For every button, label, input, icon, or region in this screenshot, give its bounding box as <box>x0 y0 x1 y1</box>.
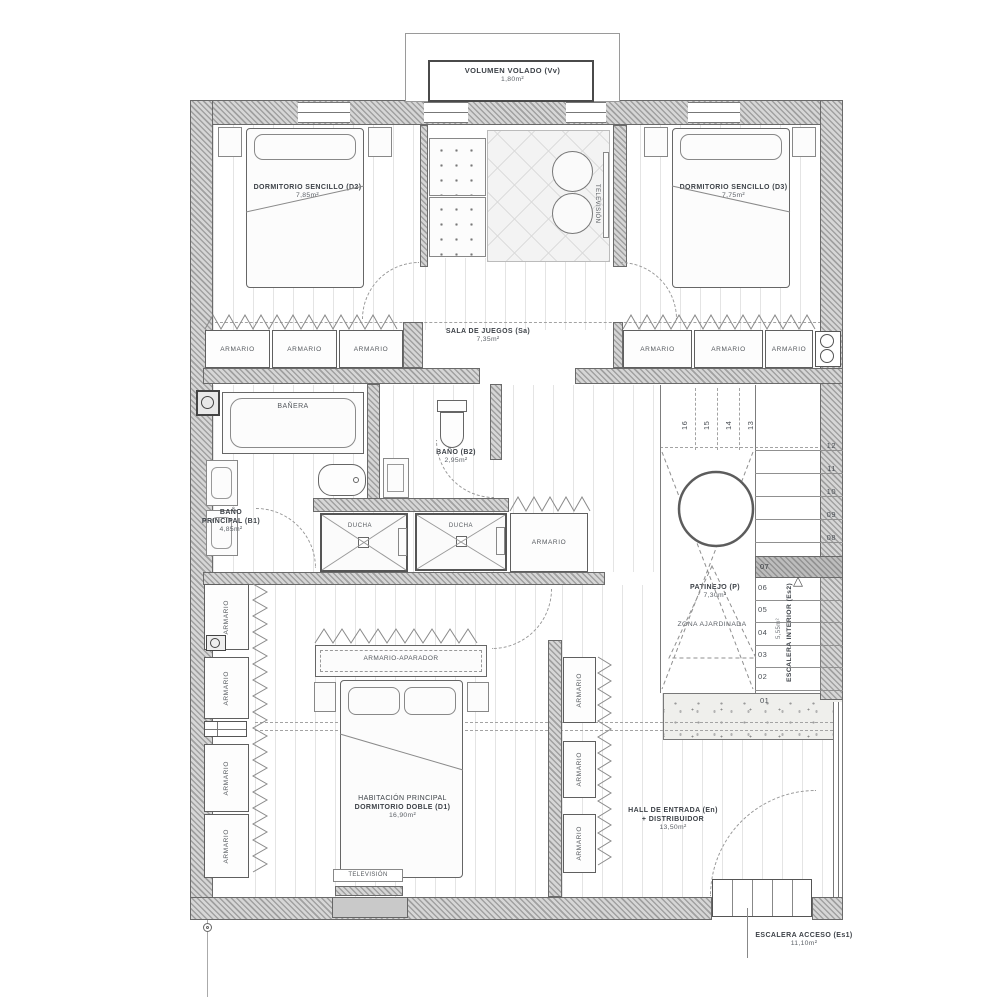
d1-name-1: HABITACIÓN PRINCIPAL <box>358 795 447 802</box>
patinejo-name: PATINEJO (P) <box>690 584 740 591</box>
armario-mid-3: ARMARIO <box>563 814 596 873</box>
d2-area: 7,85m² <box>250 192 365 201</box>
armario-label: ARMARIO <box>576 752 583 787</box>
wall-interior-right <box>575 368 843 384</box>
step-12: 12 <box>810 441 836 450</box>
d3-name: DORMITORIO SENCILLO (D3) <box>680 184 788 191</box>
step-line <box>755 690 843 691</box>
armario-label: ARMARIO <box>576 826 583 861</box>
armario-mid-2: ARMARIO <box>563 741 596 798</box>
hall-label: HALL DE ENTRADA (En) + DISTRIBUIDOR 13,5… <box>608 806 738 833</box>
armario-label: ARMARIO <box>220 346 255 353</box>
zona-ajardinada-label: ZONA AJARDINADA <box>652 621 772 630</box>
volumen-volado-name: VOLUMEN VOLADO (Vv) <box>465 66 561 75</box>
step-10: 10 <box>810 487 836 496</box>
armario-label: ARMARIO <box>354 346 389 353</box>
step-line <box>755 645 843 646</box>
wall-right <box>820 100 843 700</box>
shower-1-drain <box>358 537 369 548</box>
floor-sala <box>425 258 615 330</box>
b1-name-2: PRINCIPAL (B1) <box>202 518 260 525</box>
tv-recess-block <box>332 897 408 918</box>
sala-label: SALA DE JUEGOS (Sa) 7,35m² <box>428 327 548 345</box>
b1-name-1: BAÑO <box>220 509 242 516</box>
stair-up-arrow-icon: △ <box>793 574 803 587</box>
step-09: 09 <box>810 510 836 519</box>
tv-console <box>335 886 403 896</box>
entry-stair <box>712 879 812 917</box>
upper-flight-div-3 <box>739 388 740 450</box>
pillow-d2 <box>254 134 356 160</box>
sala-sofa-2 <box>429 197 486 257</box>
window-top-4 <box>688 102 740 123</box>
shower-2-drain <box>456 536 467 547</box>
step-line <box>755 450 843 451</box>
d1-area: 16,90m² <box>330 812 475 821</box>
window-top-1 <box>298 102 350 123</box>
armario-corridor: ARMARIO <box>510 513 588 572</box>
nightstand-d2-right <box>368 127 392 157</box>
step-line <box>755 473 843 474</box>
d1-label: HABITACIÓN PRINCIPAL DORMITORIO DOBLE (D… <box>330 794 475 821</box>
patinejo-label: PATINEJO (P) 7,30m² <box>665 583 765 601</box>
armario-label: ARMARIO <box>223 829 230 864</box>
step-line <box>755 519 843 520</box>
step-line <box>755 667 843 668</box>
es1-area: 11,10m² <box>752 940 856 949</box>
armario-top-l1: ARMARIO <box>205 330 270 368</box>
volumen-volado-label: VOLUMEN VOLADO (Vv) 1,80m² <box>408 66 617 85</box>
nightstand-d3-left <box>644 127 668 157</box>
shower-1-door <box>398 528 407 556</box>
sala-pouf-2 <box>552 193 593 234</box>
d2-label: DORMITORIO SENCILLO (D2) 7,85m² <box>250 183 365 201</box>
sala-pouf-1 <box>552 151 593 192</box>
step-16: 16 <box>680 392 689 430</box>
armario-label: ARMARIO <box>576 673 583 708</box>
wall-top <box>190 100 843 125</box>
window-hall-right <box>833 702 843 897</box>
sidetable-d1-left <box>314 682 336 712</box>
hall-area: 13,50m² <box>608 824 738 833</box>
window-top-2 <box>424 102 468 123</box>
overhead-dash-armarios <box>205 322 841 323</box>
wall-b1-b2 <box>367 384 380 500</box>
sala-tv-label: TELEVISIÓN <box>592 168 600 240</box>
armario-label: ARMARIO <box>532 539 567 546</box>
armario-label: ARMARIO <box>223 671 230 706</box>
es1-label: ESCALERA ACCESO (Es1) 11,10m² <box>752 931 856 949</box>
wall-bottom-right <box>812 897 843 920</box>
step-15: 15 <box>702 392 711 430</box>
armario-label: ARMARIO <box>711 346 746 353</box>
boiler-icon <box>196 390 220 416</box>
armario-top-r1: ARMARIO <box>623 330 692 368</box>
appliance-icon <box>206 635 226 651</box>
stair-landing-terrazzo <box>663 693 843 740</box>
d1-name-2: DORMITORIO DOBLE (D1) <box>355 804 451 811</box>
sala-area: 7,35m² <box>428 336 548 345</box>
d3-label: DORMITORIO SENCILLO (D3) 7,75m² <box>676 183 791 201</box>
toilet-b1 <box>318 464 366 496</box>
armario-left-4: ARMARIO <box>204 814 249 878</box>
step-08: 08 <box>810 533 836 542</box>
stair-edge-mid <box>755 385 756 693</box>
step-02: 02 <box>758 672 767 681</box>
ducha-2-label: DUCHA <box>428 523 494 531</box>
step-line <box>755 496 843 497</box>
upper-flight-div-1 <box>695 388 696 450</box>
step-14: 14 <box>724 392 733 430</box>
wall-armario-left-end <box>403 322 423 368</box>
sala-sofa-1 <box>429 138 486 196</box>
armario-top-l3: ARMARIO <box>339 330 403 368</box>
step-03: 03 <box>758 650 767 659</box>
es1-name: ESCALERA ACCESO (Es1) <box>755 932 852 939</box>
wall-bath-bottom <box>203 572 605 585</box>
sidetable-d1-right <box>467 682 489 712</box>
wall-master-hall <box>548 640 562 897</box>
floor-plan-canvas: VOLUMEN VOLADO (Vv) 1,80m² DORMITORIO SE… <box>0 0 1000 1000</box>
pillow-d3 <box>680 134 782 160</box>
banera-label: BAÑERA <box>240 402 346 411</box>
sala-tv-unit <box>603 152 609 238</box>
step-line <box>755 600 843 601</box>
patinejo-area: 7,30m² <box>665 592 765 601</box>
step-line <box>755 542 843 543</box>
toilet-b2-tank <box>437 400 467 412</box>
laundry-unit-icon <box>815 331 841 367</box>
shower-2-door <box>496 527 505 555</box>
survey-point-icon <box>203 923 212 932</box>
step-13: 13 <box>746 392 755 430</box>
step-11: 11 <box>810 464 836 473</box>
armario-label: ARMARIO <box>287 346 322 353</box>
radiator <box>204 721 247 737</box>
hall-name-1: HALL DE ENTRADA (En) <box>628 807 718 814</box>
wall-sala-left <box>420 125 428 267</box>
wall-armario-right-start <box>613 322 623 368</box>
armario-label: ARMARIO <box>223 600 230 635</box>
d3-area: 7,75m² <box>676 192 791 201</box>
step-01: 01 <box>760 696 769 705</box>
wall-interior-left <box>203 368 480 384</box>
step-05: 05 <box>758 605 767 614</box>
step-07: 07 <box>760 562 769 571</box>
nightstand-d3-right <box>792 127 816 157</box>
window-top-3 <box>566 102 606 123</box>
armario-left-2: ARMARIO <box>204 657 249 719</box>
volumen-volado-area: 1,80m² <box>408 76 617 85</box>
wall-shower-top <box>313 498 509 512</box>
wall-bottom-left <box>190 897 712 920</box>
es1-leader-line <box>747 908 748 958</box>
armario-left-3: ARMARIO <box>204 744 249 812</box>
aparador-label: ARMARIO-APARADOR <box>325 655 477 663</box>
armario-label: ARMARIO <box>772 346 807 353</box>
pillow-d1-left <box>348 687 400 715</box>
wall-sala-right <box>613 125 627 267</box>
pillow-d1-right <box>404 687 456 715</box>
stair-edge-left <box>660 385 661 693</box>
armario-top-l2: ARMARIO <box>272 330 337 368</box>
d2-name: DORMITORIO SENCILLO (D2) <box>254 184 362 191</box>
patinejo-void-floor <box>660 450 755 693</box>
armario-top-r2: ARMARIO <box>694 330 763 368</box>
upper-flight-div-2 <box>717 388 718 450</box>
sink-b1-1 <box>206 460 238 506</box>
armario-label: ARMARIO <box>640 346 675 353</box>
es2-label: ESCALERA INTERIOR (Es2) <box>786 572 795 692</box>
hall-name-2: + DISTRIBUIDOR <box>642 816 704 823</box>
armario-mid-1: ARMARIO <box>563 657 596 723</box>
armario-top-r3: ARMARIO <box>765 330 813 368</box>
sink-b2 <box>383 458 409 498</box>
es2-area: 5,55m² <box>776 598 784 658</box>
sala-name: SALA DE JUEGOS (Sa) <box>446 328 530 335</box>
tv-bottom-label: TELEVISIÓN <box>333 872 403 880</box>
nightstand-d2-left <box>218 127 242 157</box>
ducha-1-label: DUCHA <box>330 523 390 531</box>
armario-label: ARMARIO <box>223 761 230 796</box>
